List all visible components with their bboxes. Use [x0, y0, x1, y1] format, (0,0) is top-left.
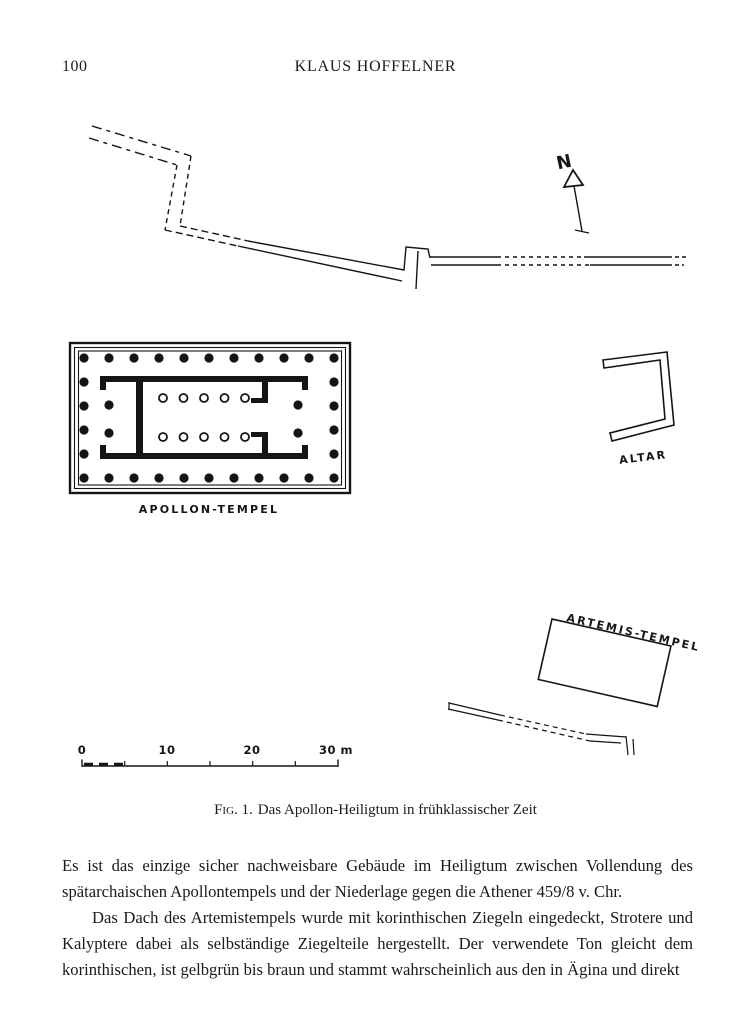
column: [104, 353, 113, 362]
column: [329, 425, 338, 434]
wall-stub: [416, 251, 418, 289]
document-page: 100 KLAUS HOFFELNER N: [0, 0, 751, 1024]
altar-outline: [603, 352, 674, 441]
altar-label: ALTAR: [618, 448, 668, 467]
site-plan-figure: N: [0, 100, 751, 800]
column: [200, 433, 208, 441]
scale-label-0: 0: [78, 743, 87, 757]
temple-crepis: [70, 343, 350, 493]
apollon-temple-plan: APOLLON-TEMPEL: [70, 343, 350, 516]
column: [229, 473, 238, 482]
column: [304, 353, 313, 362]
scale-label-10: 10: [158, 743, 175, 757]
column: [159, 394, 167, 402]
column: [179, 473, 188, 482]
column: [79, 377, 88, 386]
column: [221, 394, 229, 402]
column: [279, 473, 288, 482]
column: [329, 473, 338, 482]
column: [179, 353, 188, 362]
figure-caption: Fig. 1.Das Apollon-Heiligtum in frühklas…: [0, 802, 751, 819]
scale-label-20: 20: [243, 743, 260, 757]
scale-bar: 0 10 20 30 m: [78, 743, 353, 767]
column: [104, 428, 113, 437]
column: [254, 353, 263, 362]
column: [200, 394, 208, 402]
apollon-temple-label: APOLLON-TEMPEL: [139, 503, 279, 516]
column: [204, 473, 213, 482]
column: [304, 473, 313, 482]
body-text: Es ist das einzige sicher nachweisbare G…: [62, 853, 693, 983]
column: [241, 394, 249, 402]
column: [279, 353, 288, 362]
column: [229, 353, 238, 362]
column: [204, 353, 213, 362]
peristyle-columns: [79, 353, 338, 482]
column: [129, 353, 138, 362]
boundary-wall: [448, 702, 634, 755]
figure-caption-text: Das Apollon-Heiligtum in frühklassischer…: [258, 802, 537, 818]
column: [79, 425, 88, 434]
cella-walls: [100, 376, 308, 459]
column: [293, 400, 302, 409]
column: [79, 449, 88, 458]
column: [159, 433, 167, 441]
column: [254, 473, 263, 482]
in-antis-columns: [104, 400, 302, 437]
column: [180, 433, 188, 441]
column: [104, 400, 113, 409]
column: [329, 449, 338, 458]
column: [79, 473, 88, 482]
north-arrow: N: [555, 151, 589, 233]
column: [241, 433, 249, 441]
column: [79, 401, 88, 410]
column: [329, 353, 338, 362]
column: [221, 433, 229, 441]
column: [154, 353, 163, 362]
north-arrow-shaft: [574, 186, 582, 231]
paragraph-1: Es ist das einzige sicher nachweisbare G…: [62, 853, 693, 905]
north-label: N: [555, 151, 574, 175]
figure-caption-number: Fig. 1.: [214, 802, 253, 818]
column: [79, 353, 88, 362]
terrace-wall: [89, 126, 687, 289]
column: [104, 473, 113, 482]
paragraph-2: Das Dach des Artemistempels wurde mit ko…: [62, 905, 693, 983]
column: [129, 473, 138, 482]
column: [180, 394, 188, 402]
column: [293, 428, 302, 437]
column: [329, 377, 338, 386]
column: [329, 401, 338, 410]
cella-interior-columns: [159, 394, 249, 441]
altar-plan: ALTAR: [603, 352, 674, 467]
scale-label-30m: 30 m: [319, 743, 353, 757]
running-head: KLAUS HOFFELNER: [0, 58, 751, 76]
artemis-temple-plan: ARTEMIS-TEMPEL: [538, 611, 701, 706]
column: [154, 473, 163, 482]
